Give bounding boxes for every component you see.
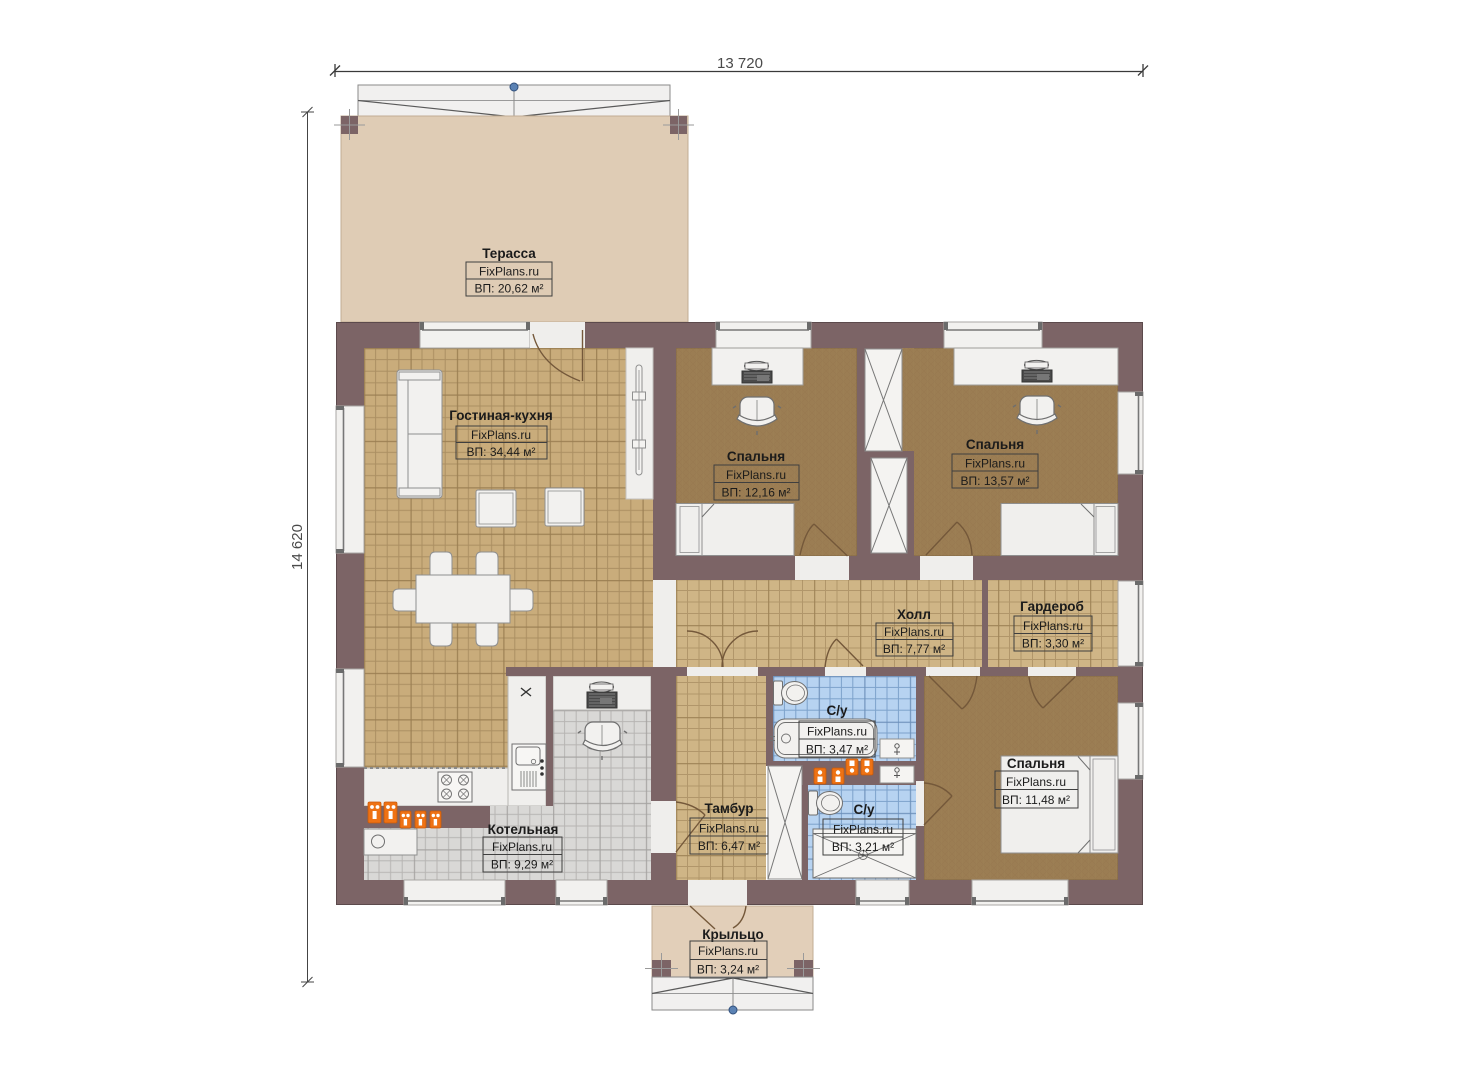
svg-text:Спальня: Спальня [966,437,1024,452]
svg-text:ВП: 3,47 м²: ВП: 3,47 м² [806,743,868,757]
svg-text:Тамбур: Тамбур [705,801,754,816]
svg-text:FixPlans.ru: FixPlans.ru [807,725,867,739]
svg-text:FixPlans.ru: FixPlans.ru [471,428,531,442]
svg-text:14 620: 14 620 [289,524,306,570]
svg-text:Спальня: Спальня [727,449,785,464]
svg-text:FixPlans.ru: FixPlans.ru [833,823,893,837]
svg-text:ВП: 3,21 м²: ВП: 3,21 м² [832,840,894,854]
svg-text:ВП: 9,29 м²: ВП: 9,29 м² [491,858,553,872]
svg-text:13 720: 13 720 [717,55,763,72]
svg-text:С/у: С/у [853,802,875,817]
svg-text:FixPlans.ru: FixPlans.ru [726,468,786,482]
svg-text:Гардероб: Гардероб [1020,599,1084,614]
svg-text:FixPlans.ru: FixPlans.ru [492,840,552,854]
svg-text:ВП: 13,57 м²: ВП: 13,57 м² [961,474,1030,488]
svg-text:Крыльцо: Крыльцо [702,927,763,942]
svg-text:ВП: 3,30 м²: ВП: 3,30 м² [1022,637,1084,651]
svg-text:ВП: 34,44 м²: ВП: 34,44 м² [467,445,536,459]
svg-text:ВП: 6,47 м²: ВП: 6,47 м² [698,839,760,853]
svg-text:FixPlans.ru: FixPlans.ru [479,265,539,279]
svg-text:Спальня: Спальня [1007,756,1065,771]
svg-text:FixPlans.ru: FixPlans.ru [1023,619,1083,633]
svg-text:ВП: 12,16 м²: ВП: 12,16 м² [722,486,791,500]
svg-text:ВП: 7,77 м²: ВП: 7,77 м² [883,642,945,656]
svg-text:ВП: 20,62 м²: ВП: 20,62 м² [475,282,544,296]
svg-text:Терасса: Терасса [482,246,536,261]
svg-text:С/у: С/у [826,703,848,718]
svg-text:FixPlans.ru: FixPlans.ru [698,944,758,958]
svg-text:Гостиная-кухня: Гостиная-кухня [449,408,552,423]
svg-text:FixPlans.ru: FixPlans.ru [1006,775,1066,789]
svg-text:Холл: Холл [897,607,931,622]
svg-text:FixPlans.ru: FixPlans.ru [884,625,944,639]
svg-text:ВП: 11,48 м²: ВП: 11,48 м² [1002,793,1070,807]
svg-text:FixPlans.ru: FixPlans.ru [965,457,1025,471]
svg-text:FixPlans.ru: FixPlans.ru [699,822,759,836]
svg-text:ВП: 3,24 м²: ВП: 3,24 м² [697,963,759,977]
svg-text:Котельная: Котельная [488,822,559,837]
